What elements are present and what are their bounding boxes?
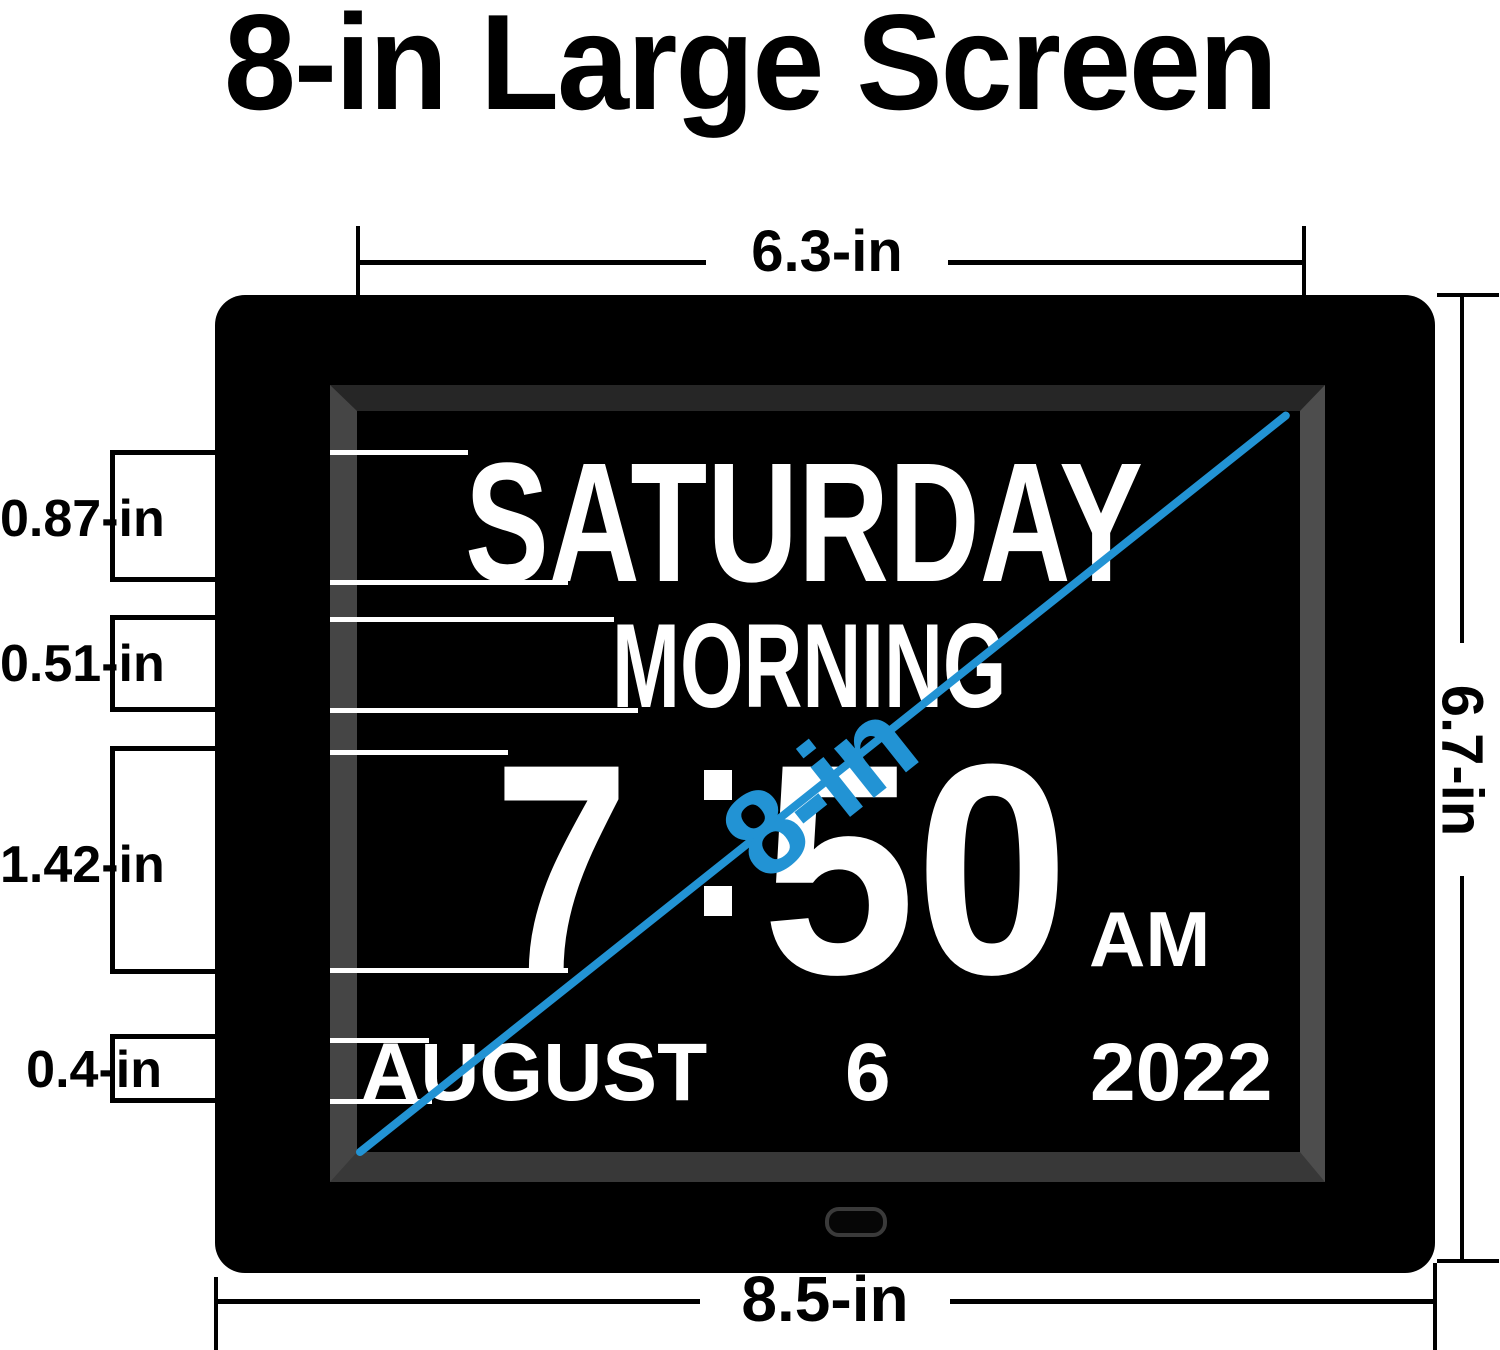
year-text: 2022 (1090, 1032, 1272, 1114)
day-of-week-text: SATURDAY (465, 438, 1143, 608)
dim-top-line-left (356, 260, 706, 265)
dim-right-ext-bottom (1437, 1259, 1499, 1263)
dim-bottom-line-left (216, 1299, 700, 1304)
dim-label-day-row: 0.87-in (0, 493, 162, 545)
dim-label-date-row: 0.4-in (0, 1044, 162, 1096)
dim-label-time-row: 1.42-in (0, 839, 162, 891)
product-dimension-diagram: 8-in Large Screen SATURDAY MORNING 7 50 … (0, 0, 1500, 1350)
page-title: 8-in Large Screen (38, 0, 1463, 130)
bracket-time-top-arm (110, 746, 215, 751)
hour-digit: 7 (494, 719, 629, 1019)
dim-right-line-bottom (1460, 876, 1464, 1263)
dim-bottom-ext-left (214, 1277, 218, 1350)
dim-right-ext-top (1437, 293, 1499, 297)
bracket-time-bottom-arm (110, 969, 215, 974)
dim-label-screen-height: 6.7-in (1436, 661, 1491, 861)
dim-label-screen-width: 6.3-in (697, 223, 957, 281)
colon-dot-bottom (704, 886, 732, 916)
dim-bottom-line-right (950, 1299, 1437, 1304)
dim-label-period-row: 0.51-in (0, 638, 162, 690)
meridiem-text: AM (1089, 900, 1210, 978)
ref-line-day-top (330, 450, 468, 455)
dim-top-line-right (948, 260, 1306, 265)
ref-line-time-top (330, 750, 508, 755)
day-number-text: 6 (845, 1032, 891, 1114)
dim-label-device-width: 8.5-in (695, 1267, 955, 1331)
dim-right-line-top (1460, 295, 1464, 643)
month-text: AUGUST (361, 1032, 707, 1114)
bracket-day-bottom-arm (110, 577, 215, 582)
front-sensor-button (825, 1207, 887, 1237)
bracket-period-top-arm (110, 615, 215, 620)
bracket-period-bottom-arm (110, 707, 215, 712)
dim-bottom-ext-right (1433, 1263, 1437, 1350)
bracket-date-top-arm (110, 1034, 215, 1039)
bracket-day-top-arm (110, 450, 215, 455)
